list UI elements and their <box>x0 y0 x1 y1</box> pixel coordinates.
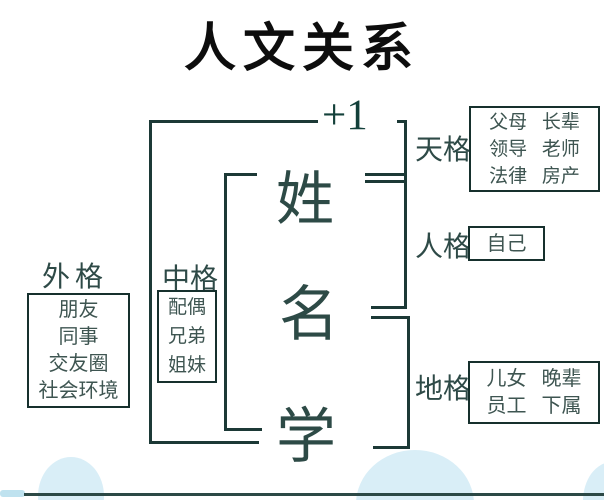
dige-top-tick <box>371 316 410 319</box>
plus-one-label: +1 <box>322 91 368 140</box>
tiange-row: 领导 老师 <box>489 136 580 163</box>
name-char-ming: 名 <box>279 266 339 353</box>
dige-box: 儿女 晚辈 员工 下属 <box>468 361 600 424</box>
decor-bottom-left-mark <box>0 490 25 497</box>
waige-row: 同事 <box>59 324 99 351</box>
dige-row: 儿女 晚辈 <box>487 366 582 393</box>
outer-bracket-left-line <box>149 120 152 444</box>
dige-label: 地格 <box>415 367 471 407</box>
bottom-rule <box>24 493 604 496</box>
dige-bracket-line <box>407 316 410 449</box>
inner-bracket-left-line <box>224 173 227 431</box>
tiange-row: 法律 房产 <box>489 163 580 190</box>
waige-label: 外格 <box>42 255 108 295</box>
tiange-bottom-tick <box>365 173 407 176</box>
waige-box: 朋友 同事 交友圈 社会环境 <box>27 293 130 408</box>
waige-row: 朋友 <box>59 297 99 324</box>
outer-bracket-bottom-line <box>149 441 259 444</box>
waige-row: 交友圈 <box>49 351 109 378</box>
renge-bottom-tick <box>371 306 407 309</box>
zhongge-row: 配偶 <box>168 293 206 322</box>
renge-row: 自己 <box>487 233 527 255</box>
tiange-box: 父母 长辈 领导 老师 法律 房产 <box>469 106 600 192</box>
tiange-label: 天格 <box>415 128 471 168</box>
renge-label: 人格 <box>415 225 471 265</box>
tiange-renge-bracket-line <box>404 120 407 309</box>
renge-top-tick <box>365 180 407 183</box>
waige-row: 社会环境 <box>39 378 119 405</box>
dige-row: 员工 下属 <box>487 393 582 420</box>
inner-bracket-bottom-line <box>224 428 262 431</box>
name-char-xue: 学 <box>276 388 336 475</box>
dige-bottom-tick <box>373 446 410 449</box>
outer-bracket-top-line <box>149 120 318 123</box>
zhongge-box: 配偶 兄弟 姐妹 <box>157 290 217 383</box>
renge-box: 自己 <box>468 226 545 261</box>
page-title: 人文关系 <box>0 6 604 81</box>
name-char-xing: 姓 <box>276 152 334 236</box>
zhongge-row: 兄弟 <box>168 322 206 351</box>
inner-bracket-top-line <box>224 173 257 176</box>
diagram-canvas: 人文关系 +1 姓 名 学 天格 人格 地格 外格 中格 父母 长辈 领导 老师… <box>0 0 604 500</box>
zhongge-row: 姐妹 <box>168 351 206 380</box>
tiange-row: 父母 长辈 <box>489 109 580 136</box>
